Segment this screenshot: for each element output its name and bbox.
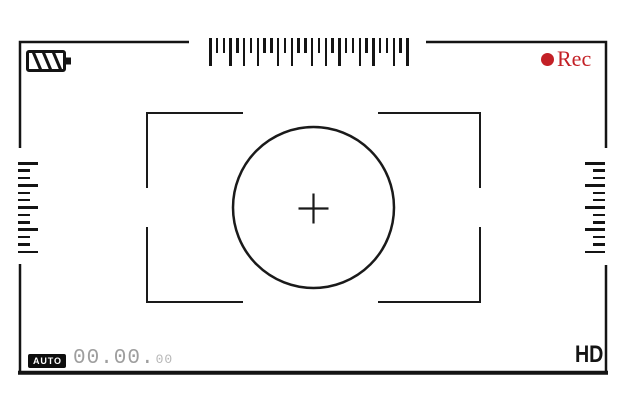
ruler-tick [399,38,402,53]
camera-viewfinder: Rec AUTO 00.00. 00 HD [0,0,626,418]
ruler-tick [284,38,287,53]
time-counter-frames: 00 [156,353,174,366]
ruler-tick [297,38,300,53]
ruler-tick [585,162,605,165]
plus-crosshair-icon [299,194,329,224]
ruler-tick [270,38,273,53]
ruler-tick [18,184,38,187]
battery-terminal [66,58,71,65]
ruler-tick [263,38,266,53]
focus-bracket-top-right [378,113,480,188]
ruler-tick [593,192,605,195]
ruler-tick [223,38,226,53]
ruler-tick [257,38,260,66]
ruler-tick [18,177,30,180]
ruler-tick [593,214,605,217]
battery-icon [26,50,72,72]
ruler-tick [18,206,38,209]
ruler-tick [18,214,30,217]
ruler-tick [331,38,334,53]
focus-bracket-bottom-right [378,227,480,302]
ruler-tick [372,38,375,66]
hd-quality-label: HD [575,343,602,367]
ruler-tick [18,162,38,165]
ruler-tick [345,38,348,53]
ruler-tick [325,38,328,66]
ruler-tick [379,38,382,53]
ruler-tick [593,177,605,180]
ruler-tick [250,38,253,53]
auto-mode-badge: AUTO [28,354,66,368]
ruler-tick [304,38,307,53]
ruler-tick [365,38,368,53]
ruler-tick [585,184,605,187]
exposure-ruler-right [585,162,605,253]
exposure-ruler-left [18,162,38,253]
rec-indicator: Rec [541,47,591,71]
ruler-tick [18,192,30,195]
ruler-tick [585,251,605,254]
ruler-tick [18,169,30,172]
focus-bracket-top-left [147,113,243,188]
ruler-tick [593,169,605,172]
rec-label: Rec [557,48,591,70]
ruler-tick [18,236,30,239]
ruler-tick [406,38,409,66]
ruler-tick [277,38,280,66]
ruler-tick [585,206,605,209]
battery-stripes [33,52,61,71]
rec-dot-icon [541,53,554,66]
ruler-tick [229,38,232,66]
ruler-tick [18,243,30,246]
ruler-tick [593,221,605,224]
ruler-tick [593,243,605,246]
exposure-ruler-top [209,38,409,66]
ruler-tick [209,38,212,66]
ruler-tick [291,38,294,66]
focus-bracket-bottom-left [147,227,243,302]
ruler-tick [393,38,396,66]
ruler-tick [386,38,389,53]
ruler-tick [18,221,30,224]
ruler-tick [585,228,605,231]
ruler-tick [338,38,341,66]
ruler-tick [18,228,38,231]
ruler-tick [318,38,321,53]
ruler-tick [359,38,362,66]
ruler-tick [593,199,605,202]
ruler-tick [352,38,355,53]
time-counter: 00.00. 00 [73,348,173,369]
ruler-tick [216,38,219,53]
ruler-tick [311,38,314,66]
ruler-tick [243,38,246,66]
time-counter-main: 00.00. [73,348,155,369]
ruler-tick [236,38,239,53]
ruler-tick [18,251,38,254]
ruler-tick [18,199,30,202]
ruler-tick [593,236,605,239]
